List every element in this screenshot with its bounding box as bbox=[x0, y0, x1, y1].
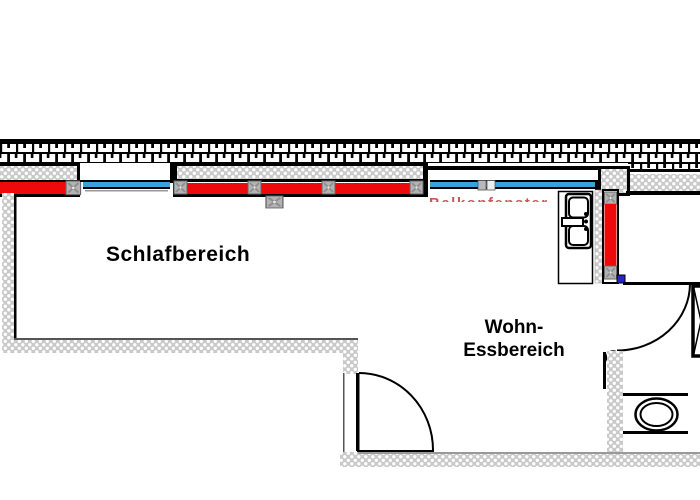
floor-plan-canvas: Schlafbereich Wohn- Essbereich Balkonfen… bbox=[0, 0, 700, 500]
wall-left bbox=[2, 193, 17, 353]
room-label-living-line1: Wohn- bbox=[438, 316, 590, 339]
wall-bottom bbox=[340, 452, 700, 467]
toilet-icon bbox=[623, 393, 688, 434]
room-label-living-line2: Essbereich bbox=[438, 339, 590, 362]
shaft-cross-box-icon bbox=[693, 286, 700, 356]
clipped-window-label: Balkonfenster bbox=[429, 195, 589, 202]
radiator-icon bbox=[595, 190, 618, 283]
room-label-bedroom: Schlafbereich bbox=[106, 243, 250, 267]
wall-bedroom-bottom bbox=[2, 338, 358, 374]
kitchen-sink-icon bbox=[559, 192, 593, 284]
bathroom-wall bbox=[603, 351, 623, 457]
door-swing-icon bbox=[617, 275, 700, 351]
door-swing-icon bbox=[343, 373, 434, 453]
floor-plan-drawing bbox=[0, 0, 700, 500]
room-label-living-dining: Wohn- Essbereich bbox=[438, 316, 590, 362]
window-glass-icon bbox=[425, 166, 602, 191]
radiator-icon bbox=[173, 181, 428, 208]
window-glass-icon bbox=[80, 163, 173, 192]
